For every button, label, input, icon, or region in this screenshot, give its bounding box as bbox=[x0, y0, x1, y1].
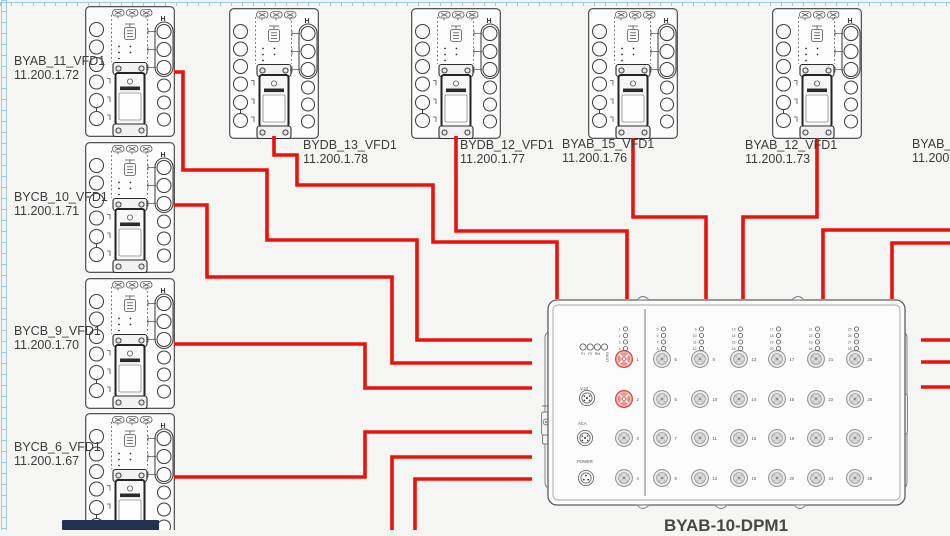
dpm-device[interactable]: P1 P2 RM FAULT V.24 ACA POWER bbox=[542, 297, 908, 509]
device-label: BYAB_12_VFD111.200.1.73 bbox=[745, 139, 837, 166]
dpm-port-number-28: 28 bbox=[868, 476, 873, 481]
device-ip: 11.200.1.72 bbox=[14, 69, 105, 83]
device-label-clipped: BYAB_1311.200.1 bbox=[912, 138, 950, 165]
device-ip: 11.200.1.70 bbox=[14, 339, 101, 353]
device-label: BYDB_13_VFD111.200.1.78 bbox=[303, 139, 397, 166]
dpm-port-number-11: 11 bbox=[713, 436, 718, 441]
port-led-label-16: 16 bbox=[732, 347, 736, 351]
device-ip: 11.200.1.73 bbox=[745, 153, 837, 167]
device-name: BYAB_11_VFD1 bbox=[14, 55, 105, 69]
device-ip: 11.200.1.71 bbox=[14, 205, 108, 219]
device-ip: 11.200.1.67 bbox=[14, 455, 101, 469]
led-label-p2: P2 bbox=[588, 352, 592, 356]
vfd-device-5[interactable] bbox=[412, 9, 501, 139]
device-label: BYCB_9_VFD111.200.1.70 bbox=[14, 325, 101, 352]
port-led-label-28: 28 bbox=[848, 347, 852, 351]
port-led-label-20: 20 bbox=[770, 347, 774, 351]
port-led-label-22: 22 bbox=[809, 334, 813, 338]
dpm-port-7[interactable] bbox=[654, 430, 671, 447]
dpm-port-6[interactable] bbox=[654, 391, 671, 408]
dpm-port-12[interactable] bbox=[692, 470, 709, 487]
port-led-label-1: 1 bbox=[619, 327, 621, 331]
dpm-port-number-24: 24 bbox=[829, 476, 834, 481]
dpm-port-5[interactable] bbox=[654, 351, 671, 368]
dpm-port-27[interactable] bbox=[847, 430, 864, 447]
port-led-label-21: 21 bbox=[809, 327, 813, 331]
dpm-port-23[interactable] bbox=[808, 430, 825, 447]
port-led-label-14: 14 bbox=[732, 334, 736, 338]
dpm-port-number-12: 12 bbox=[713, 476, 718, 481]
dpm-port-14[interactable] bbox=[731, 391, 748, 408]
device-label: BYCB_6_VFD111.200.1.67 bbox=[14, 441, 101, 468]
dpm-port-number-20: 20 bbox=[790, 476, 795, 481]
dpm-port-number-14: 14 bbox=[752, 397, 757, 402]
dpm-port-20[interactable] bbox=[769, 470, 786, 487]
dpm-port-number-27: 27 bbox=[868, 436, 873, 441]
dpm-device-label: BYAB-10-DPM1 bbox=[664, 516, 788, 536]
diagram-canvas[interactable]: H bbox=[0, 0, 950, 530]
bottom-edge-artifact bbox=[62, 520, 159, 530]
led-label-rm: RM bbox=[595, 352, 600, 356]
vfd-device-7[interactable] bbox=[773, 9, 862, 139]
dpm-port-22[interactable] bbox=[808, 391, 825, 408]
dpm-port-number-23: 23 bbox=[829, 436, 834, 441]
port-led-label-17: 17 bbox=[770, 327, 774, 331]
port-led-label-12: 12 bbox=[693, 347, 697, 351]
port-led-label-26: 26 bbox=[848, 334, 852, 338]
wire-bottom2-dpm[interactable] bbox=[415, 479, 532, 530]
device-name: BYCB_9_VFD1 bbox=[14, 325, 101, 339]
dpm-port-number-16: 16 bbox=[752, 476, 757, 481]
port-led-label-11: 11 bbox=[693, 340, 697, 344]
port-led-label-10: 10 bbox=[693, 334, 697, 338]
device-name: BYDB_12_VFD1 bbox=[460, 139, 554, 153]
device-name: BYAB_15_VFD1 bbox=[562, 138, 654, 152]
dpm-port-13[interactable] bbox=[731, 351, 748, 368]
led-label-p1: P1 bbox=[581, 352, 585, 356]
dpm-port-17[interactable] bbox=[769, 351, 786, 368]
port-led-label-18: 18 bbox=[770, 334, 774, 338]
dpm-port-number-21: 21 bbox=[829, 357, 834, 362]
dpm-port-number-17: 17 bbox=[790, 357, 795, 362]
port-led-label-13: 13 bbox=[732, 327, 736, 331]
port-led-label-19: 19 bbox=[770, 340, 774, 344]
port-led-label-5: 5 bbox=[657, 327, 659, 331]
port-led-label-9: 9 bbox=[695, 327, 697, 331]
device-name: BYCB_6_VFD1 bbox=[14, 441, 101, 455]
device-ip: 11.200.1 bbox=[912, 152, 950, 166]
device-ip: 11.200.1.77 bbox=[460, 153, 554, 167]
wire-right2-dpm[interactable] bbox=[892, 243, 950, 299]
led-label-fault: FAULT bbox=[605, 352, 609, 362]
wire-bottom1-dpm[interactable] bbox=[392, 457, 532, 530]
dpm-port-18[interactable] bbox=[769, 391, 786, 408]
wire-bycb9-dpm[interactable] bbox=[174, 344, 532, 388]
vfd-device-4[interactable] bbox=[230, 9, 319, 139]
port-led-label-6: 6 bbox=[657, 334, 659, 338]
dpm-port-number-13: 13 bbox=[752, 357, 757, 362]
vfd-device-3[interactable] bbox=[86, 414, 175, 530]
dpm-port-8[interactable] bbox=[654, 470, 671, 487]
dpm-port-9[interactable] bbox=[692, 351, 709, 368]
dpm-port-19[interactable] bbox=[769, 430, 786, 447]
port-led-label-25: 25 bbox=[848, 327, 852, 331]
dpm-port-2[interactable] bbox=[616, 391, 633, 408]
dpm-port-number-10: 10 bbox=[713, 397, 718, 402]
port-led-label-2: 2 bbox=[619, 334, 621, 338]
device-label: BYAB_11_VFD111.200.1.72 bbox=[14, 55, 105, 82]
dpm-port-21[interactable] bbox=[808, 351, 825, 368]
port-led-label-23: 23 bbox=[809, 340, 813, 344]
dpm-port-3[interactable] bbox=[616, 430, 633, 447]
device-label: BYAB_15_VFD111.200.1.76 bbox=[562, 138, 654, 165]
dpm-port-10[interactable] bbox=[692, 391, 709, 408]
dpm-port-number-19: 19 bbox=[790, 436, 795, 441]
port-led-label-3: 3 bbox=[619, 340, 621, 344]
port-led-label-15: 15 bbox=[732, 340, 736, 344]
dpm-port-number-25: 25 bbox=[868, 357, 873, 362]
dpm-port-24[interactable] bbox=[808, 470, 825, 487]
dpm-port-number-18: 18 bbox=[790, 397, 795, 402]
device-name: BYDB_13_VFD1 bbox=[303, 139, 397, 153]
device-name: BYAB_12_VFD1 bbox=[745, 139, 837, 153]
dpm-port-26[interactable] bbox=[847, 391, 864, 408]
aca-label: ACA bbox=[578, 421, 587, 426]
wire-bycb6-dpm[interactable] bbox=[174, 432, 532, 477]
device-label: BYDB_12_VFD111.200.1.77 bbox=[460, 139, 554, 166]
vfd-device-6[interactable] bbox=[589, 9, 678, 139]
dpm-port-1[interactable] bbox=[616, 351, 633, 368]
dpm-port-25[interactable] bbox=[847, 351, 864, 368]
device-ip: 11.200.1.78 bbox=[303, 153, 397, 167]
dpm-port-28[interactable] bbox=[847, 470, 864, 487]
device-name: BYAB_13 bbox=[912, 138, 950, 152]
port-led-label-4: 4 bbox=[619, 347, 621, 351]
wire-right1-dpm[interactable] bbox=[823, 230, 950, 299]
device-label: BYCB_10_VFD111.200.1.71 bbox=[14, 191, 108, 218]
port-led-label-24: 24 bbox=[809, 347, 813, 351]
dpm-port-11[interactable] bbox=[692, 430, 709, 447]
port-led-label-7: 7 bbox=[657, 340, 659, 344]
power-label: POWER bbox=[577, 459, 593, 464]
dpm-port-number-26: 26 bbox=[868, 397, 873, 402]
dpm-port-number-22: 22 bbox=[829, 397, 834, 402]
dpm-port-16[interactable] bbox=[731, 470, 748, 487]
port-led-label-27: 27 bbox=[848, 340, 852, 344]
dpm-port-4[interactable] bbox=[616, 470, 633, 487]
port-led-label-8: 8 bbox=[657, 347, 659, 351]
dpm-port-number-15: 15 bbox=[752, 436, 757, 441]
device-name: BYCB_10_VFD1 bbox=[14, 191, 108, 205]
device-ip: 11.200.1.76 bbox=[562, 152, 654, 166]
dpm-port-15[interactable] bbox=[731, 430, 748, 447]
